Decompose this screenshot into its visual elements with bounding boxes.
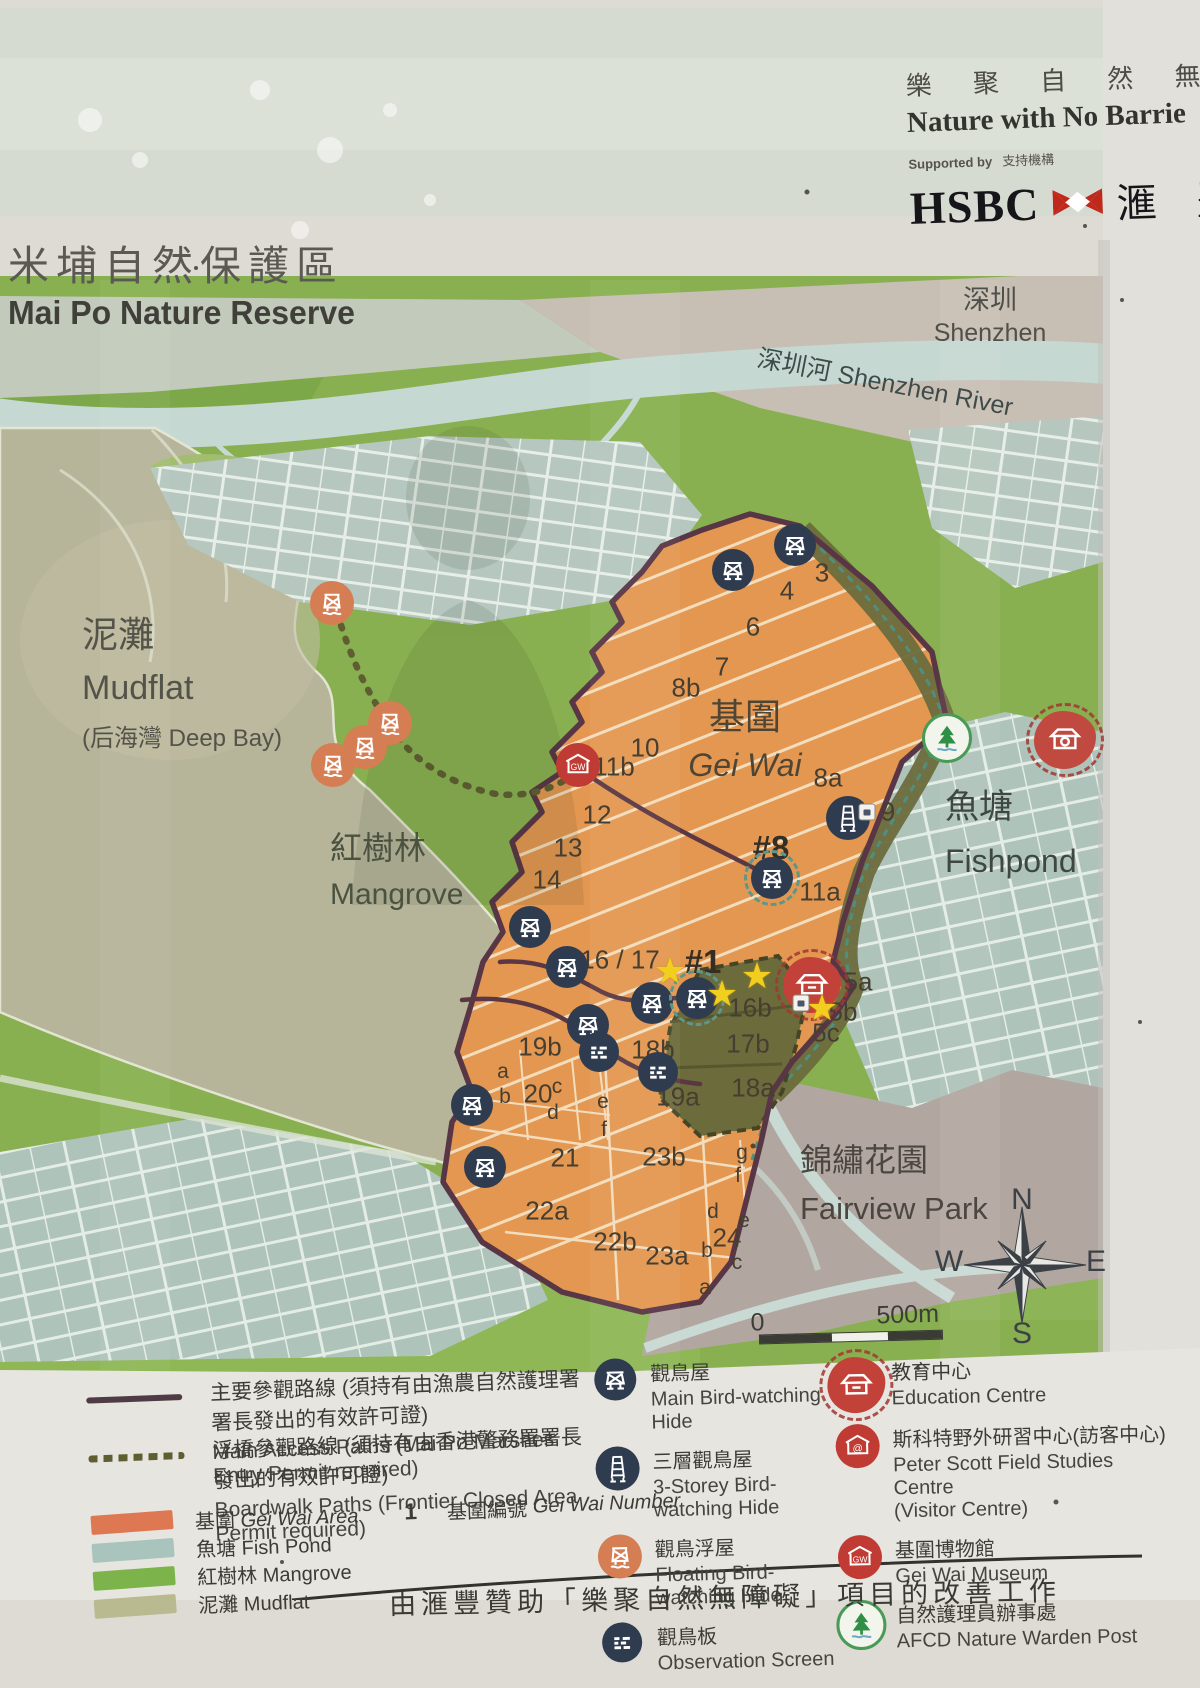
scale-start: 0: [750, 1308, 765, 1337]
area-color-swatch: [94, 1593, 177, 1618]
compass-w: W: [935, 1245, 963, 1279]
star-marker-icon: ★: [806, 990, 838, 1026]
floating-bird-hide-icon[interactable]: [310, 581, 354, 625]
observation-screen-icon[interactable]: [638, 1052, 678, 1092]
area-color-swatch: [91, 1538, 174, 1563]
floating-bird-hide-icon[interactable]: [311, 743, 355, 787]
main-bird-hide-icon[interactable]: [509, 906, 551, 948]
legend-icon-zh: 教育中心: [891, 1353, 1046, 1385]
main-bird-hide-icon[interactable]: [451, 1084, 493, 1126]
gei-wai-museum-icon[interactable]: GW: [556, 743, 600, 787]
legend-icon-slot: [592, 1358, 639, 1401]
path-line-swatch: [88, 1452, 184, 1463]
legend-icon-row: 三層觀鳥屋 3-Storey Bird-watching Hide: [594, 1441, 831, 1524]
svg-text:@: @: [852, 1444, 863, 1455]
legend-icon-slot: [594, 1446, 641, 1491]
legend-icon-slot: [596, 1534, 643, 1579]
compass-n: N: [1011, 1183, 1033, 1217]
main-bird-hide-icon[interactable]: [546, 946, 588, 988]
scale-end: 500m: [876, 1300, 939, 1331]
floating-bird-hide-icon[interactable]: [597, 1534, 642, 1579]
legend-icon-row: 觀鳥板 Observation Screen: [599, 1617, 835, 1677]
lookout-camera-icon[interactable]: [1034, 711, 1096, 769]
legend-icon-en: Peter Scott Field Studies Centre: [893, 1448, 1176, 1500]
main-bird-hide-icon[interactable]: [712, 549, 754, 591]
area-color-swatch: [93, 1565, 176, 1590]
legend-icon-row: @ 斯科特野外研習中心(訪客中心) Peter Scott Field Stud…: [834, 1417, 1176, 1524]
legend-icon-en: 3-Storey Bird-watching Hide: [653, 1472, 831, 1523]
svg-text:GW: GW: [852, 1554, 868, 1564]
legend-icon-zh: 觀鳥屋: [650, 1353, 828, 1387]
path-line-swatch: [86, 1394, 182, 1404]
star-marker-icon: ★: [654, 953, 686, 989]
legend-icon-en2: (Visitor Centre): [894, 1494, 1176, 1523]
observation-screen-icon[interactable]: [602, 1622, 643, 1663]
legend-icon-row: 教育中心 Education Centre: [833, 1350, 1174, 1413]
legend-icon-zh: 斯科特野外研習中心(訪客中心): [892, 1417, 1175, 1452]
legend-icon-zh: 三層觀鳥屋: [652, 1441, 830, 1475]
main-bird-hide-icon[interactable]: [774, 524, 816, 566]
compass-e: E: [1086, 1245, 1106, 1279]
main-bird-hide-icon-highlighted[interactable]: [751, 857, 793, 899]
education-centre-icon[interactable]: [827, 1357, 886, 1414]
visitor-centre-icon[interactable]: @: [835, 1424, 880, 1469]
legend-icon-zh: 觀鳥浮屋: [654, 1529, 832, 1563]
legend-icon-zh: 基圍博物館: [895, 1531, 1048, 1563]
star-marker-icon: ★: [741, 958, 773, 994]
legend-area-label: 泥灘 Mudflat: [198, 1585, 310, 1618]
three-storey-hide-icon[interactable]: [595, 1446, 640, 1491]
svg-text:GW: GW: [570, 762, 586, 772]
legend-icon-zh: 觀鳥板: [657, 1617, 834, 1651]
small-marker-icon: [793, 995, 810, 1012]
observation-screen-icon[interactable]: [579, 1032, 619, 1072]
area-color-swatch: [90, 1510, 173, 1535]
legend-icon-slot: [599, 1622, 646, 1663]
main-bird-hide-icon[interactable]: [464, 1146, 506, 1188]
small-marker-icon: [859, 804, 876, 821]
legend-icon-en: Education Centre: [891, 1384, 1046, 1410]
legend-icon-slot: @: [834, 1424, 881, 1469]
legend-icon-row: 觀鳥屋 Main Bird-watching Hide: [592, 1353, 829, 1436]
legend-hides: 觀鳥屋 Main Bird-watching Hide 三層觀鳥屋 3-Stor…: [592, 1353, 836, 1688]
afcd-warden-post-icon[interactable]: [922, 713, 972, 763]
legend-icon-en: Main Bird-watching Hide: [651, 1384, 829, 1435]
main-bird-hide-icon[interactable]: [594, 1358, 637, 1401]
legend-icon-en: AFCD Nature Warden Post: [897, 1625, 1138, 1653]
legend-facilities: 教育中心 Education Centre @ 斯科特野外研習中心(訪客中心) …: [833, 1350, 1179, 1665]
star-marker-icon: ★: [706, 976, 738, 1012]
compass-s: S: [1012, 1317, 1032, 1351]
legend-icon-en: Observation Screen: [657, 1648, 834, 1676]
legend-icon-slot: [833, 1357, 880, 1414]
